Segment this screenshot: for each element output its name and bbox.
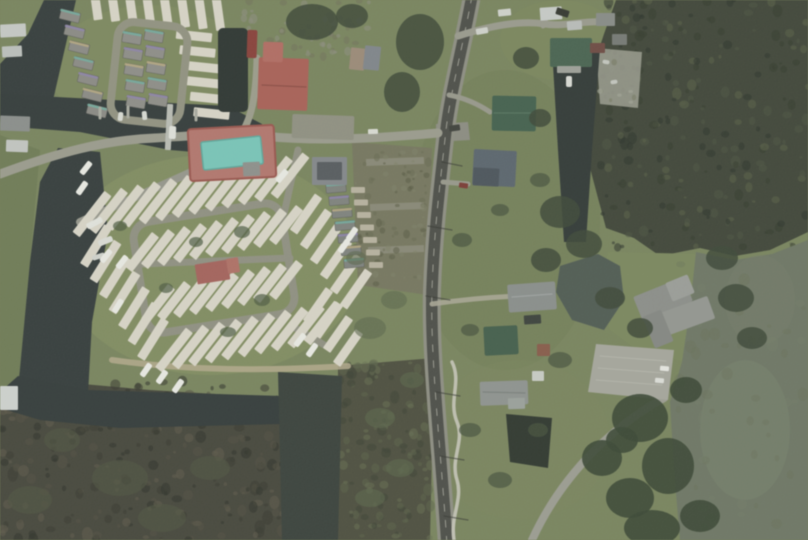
aerial-photo-canvas: [0, 0, 808, 540]
aerial-photo: [0, 0, 808, 540]
scene-layers: [0, 0, 808, 540]
photo-grain: [0, 0, 808, 540]
